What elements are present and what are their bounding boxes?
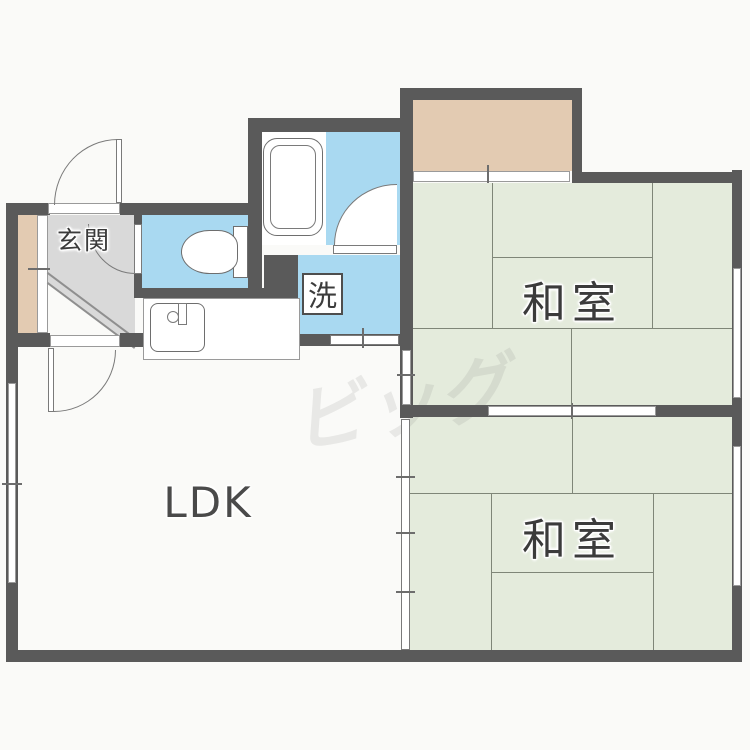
wall-toilet-bath-divider bbox=[248, 118, 262, 298]
wall-bottom bbox=[6, 650, 742, 662]
shoe-cabinet bbox=[18, 215, 37, 333]
window-ldk-room-divider bbox=[402, 350, 411, 405]
tatami-line bbox=[492, 257, 652, 258]
hall-door-leaf bbox=[48, 348, 54, 412]
washer-door-tick bbox=[362, 328, 364, 348]
wall-right bbox=[732, 170, 742, 662]
wall-genkan-stub-left bbox=[18, 333, 50, 347]
floor-plan: ビッグ 洗 bbox=[0, 0, 750, 750]
washer-label: 洗 bbox=[308, 273, 337, 315]
washing-machine-pan: 洗 bbox=[302, 273, 343, 315]
tatami-line bbox=[410, 493, 732, 494]
entrance-door-leaf bbox=[116, 139, 122, 203]
hall-door-arc bbox=[54, 350, 116, 412]
toilet-bowl bbox=[181, 230, 238, 274]
wall-balcony-top bbox=[402, 88, 582, 100]
washer-area-sliding-door bbox=[330, 335, 399, 345]
balcony-window bbox=[413, 171, 570, 182]
window-left-tick bbox=[2, 483, 22, 485]
divider-window-tick bbox=[397, 374, 415, 376]
balcony-window-tick bbox=[487, 165, 489, 183]
sliding-door-tick-3 bbox=[396, 591, 415, 593]
wall-genkan-stub-right bbox=[120, 333, 143, 347]
sliding-door-tick-1 bbox=[396, 476, 415, 478]
entrance-label: 玄関 bbox=[44, 221, 124, 257]
sliding-door-tick-2 bbox=[396, 532, 415, 534]
balcony-floor bbox=[413, 100, 572, 171]
bathtub-inner bbox=[270, 145, 316, 229]
wall-room-north-top bbox=[572, 172, 742, 183]
toilet-door-leaf bbox=[134, 224, 142, 274]
tatami-line bbox=[572, 417, 573, 493]
ldk-label: LDK bbox=[108, 478, 308, 527]
japanese-room-south-label: 和室 bbox=[472, 504, 672, 568]
entrance-door-arc bbox=[54, 139, 118, 205]
sliding-door-ldk-room bbox=[401, 419, 410, 650]
faucet-handle-icon bbox=[178, 303, 187, 325]
bathroom-door-leaf bbox=[333, 245, 397, 254]
wall-top-entrance-left bbox=[6, 203, 50, 215]
window-right-south bbox=[733, 446, 741, 586]
tatami-line bbox=[571, 328, 572, 405]
hall-opening bbox=[50, 335, 120, 347]
window-right-north bbox=[733, 268, 741, 398]
wall-balcony-right bbox=[572, 98, 582, 175]
wall-bathroom-top bbox=[248, 118, 413, 132]
wall-below-toilet bbox=[134, 288, 270, 298]
cabinet-tick bbox=[28, 268, 50, 270]
japanese-room-north-label: 和室 bbox=[472, 267, 672, 331]
tatami-line bbox=[491, 572, 653, 573]
